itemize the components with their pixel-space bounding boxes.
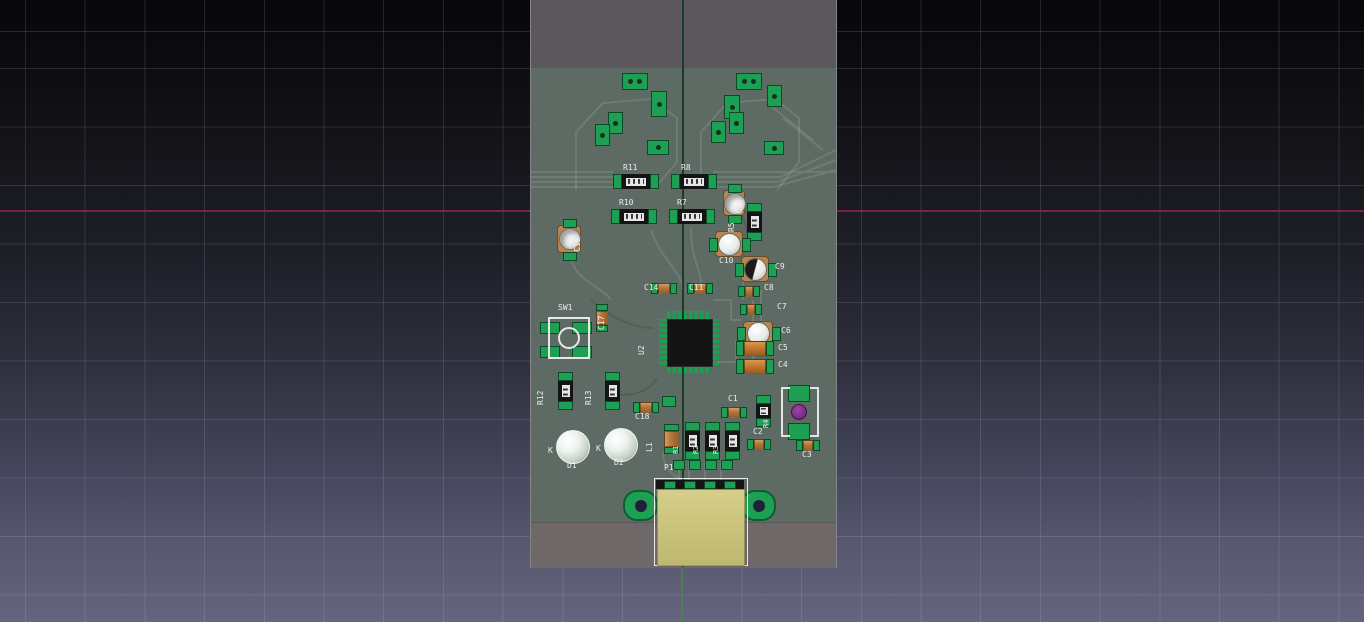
resistor-r1 [685,422,700,460]
silk-label-c9: C9 [775,262,785,272]
silk-label-c3: C3 [802,450,812,460]
silk-label-c14: C14 [644,283,658,293]
silk-label-c10: C10 [719,256,733,266]
silk-label-d2-cathode: K [596,444,601,454]
silk-label-r12: R12 [536,391,546,405]
silk-label-p1: P1 [664,463,674,473]
smd-pad [767,85,782,107]
capacitor-c9 [735,256,775,282]
resistor-r7 [669,209,715,224]
capacitor-c10 [709,231,749,257]
smd-pad [721,460,733,470]
silk-label-c1: C1 [728,394,738,404]
resistor-r3 [725,422,740,460]
capacitor-c7 [740,304,762,315]
silk-label-r11: R11 [623,163,637,173]
silk-label-r2: R2 [691,446,701,454]
silk-label-r13: R13 [584,391,594,405]
smd-pad [711,121,726,143]
switch-sw1-circle [558,327,580,349]
silk-label-c13: C13 [735,200,745,214]
resistor-r11 [613,174,659,189]
usb-connector-body [657,489,745,566]
silk-label-sw1: SW1 [558,303,572,313]
pcb-3d-viewport[interactable]: R11 R8 R10 R7 C13 R5 C16 C10 C9 C14 C11 … [0,0,1364,622]
silk-label-r8: R8 [681,163,691,173]
capacitor-c5 [736,341,774,356]
smd-pad [651,91,667,117]
silk-label-r7: R7 [677,198,687,208]
capacitor-c4 [736,359,774,374]
silk-label-u2: U2 [637,345,647,355]
silk-label-c17: C17 [597,316,607,330]
silk-label-c4: C4 [778,360,788,370]
capacitor-c1 [721,407,747,418]
capacitor-c8 [738,286,760,297]
silk-label-r10: R10 [619,198,633,208]
led-d1 [556,430,590,464]
y-axis-line [681,567,683,622]
silk-label-c11: C11 [689,283,703,293]
silk-label-r3: R3 [711,446,721,454]
smd-pad [736,73,762,90]
resistor-r10 [611,209,657,224]
silk-label-r4: R4 [761,420,771,428]
smd-pad [662,396,676,407]
led-d2 [604,428,638,462]
smd-pad [647,140,669,155]
resistor-r13 [605,372,620,410]
silk-label-c7: C7 [777,302,787,312]
smd-pad [608,112,623,134]
silk-label-c2: C2 [753,427,763,437]
silk-label-d1: D1 [567,461,577,471]
silk-label-c6: C6 [781,326,791,336]
silk-label-d1-cathode: K [548,446,553,456]
silk-label-c5: C5 [778,343,788,353]
silk-label-l1: L1 [645,442,655,452]
silk-label-c16: C16 [573,238,583,252]
violet-component [791,404,807,420]
silk-label-d2: D2 [614,458,624,468]
smd-pad [689,460,701,470]
ic-u2 [667,319,713,367]
resistor-r8 [671,174,717,189]
resistor-r2 [705,422,720,460]
resistor-r5 [747,203,762,241]
silk-label-c8: C8 [764,283,774,293]
resistor-r12 [558,372,573,410]
pcb-board: R11 R8 R10 R7 C13 R5 C16 C10 C9 C14 C11 … [530,0,837,568]
smd-pad [622,73,648,90]
capacitor-c2 [747,439,771,450]
silk-label-c18: C18 [635,412,649,422]
silk-label-r5: R5 [727,222,737,232]
usb-connector-pins [656,480,744,489]
smd-pad [764,141,784,155]
smd-pad [673,460,685,470]
smd-pad [729,112,744,134]
silk-label-r1: R1 [671,446,681,454]
smd-pad [705,460,717,470]
smd-pad [595,124,610,146]
